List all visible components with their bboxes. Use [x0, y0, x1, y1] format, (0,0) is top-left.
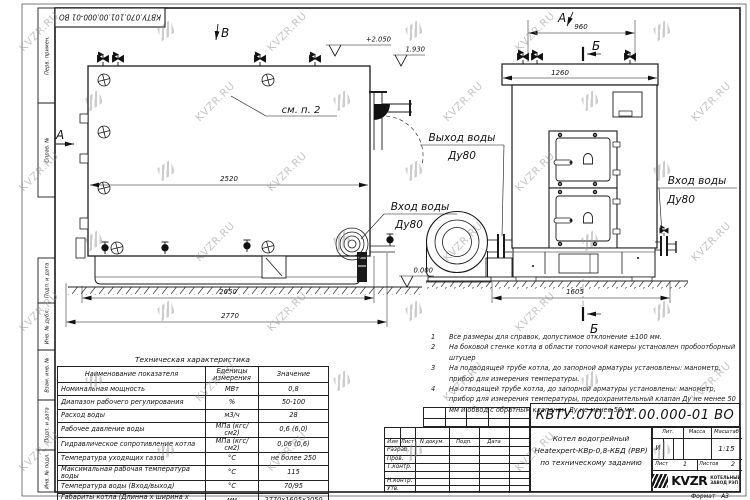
scale-value: 1:15: [711, 445, 742, 452]
lit-header: Лит.: [653, 430, 683, 435]
water-inlet-dn-front: Ду80: [666, 194, 695, 206]
drawing-title-cell: Котел водогрейный Heatexpert-КВр-0,8-КБД…: [530, 427, 652, 492]
stamp-sprav-n: Справ. №: [45, 137, 51, 162]
top-doc-number-box: КВТУ.070.101.00.000-01 ВО: [55, 8, 165, 27]
elevation-pipe: 1.930: [406, 46, 425, 54]
sheets-label: Листов: [699, 462, 723, 467]
note-item: 3 На подводящей трубе котла, до запорной…: [428, 363, 740, 384]
row-checked: Пров.: [387, 457, 404, 463]
param-unit: %: [206, 396, 259, 409]
col-doc: N докум.: [415, 440, 449, 445]
change-record-grid: [423, 407, 530, 427]
table-row: Температура воды (Вход/выход)°С70/95: [58, 480, 329, 493]
format-label: Формат: [691, 493, 715, 500]
table-row: Диапазон рабочего регулирования%50-100: [58, 396, 329, 409]
note-number: 2: [428, 342, 449, 363]
tech-header: Значение: [259, 367, 329, 383]
water-outlet-label: Выход воды: [429, 132, 496, 144]
tech-characteristics: Техническая характеристика Наименование …: [57, 354, 328, 500]
water-inlet-label-side: Вход воды: [391, 201, 450, 213]
company-logo-text: KVZR: [671, 473, 707, 488]
param-unit: °С: [206, 465, 259, 480]
water-inlet-label-front: Вход воды: [668, 175, 727, 187]
table-row: Температура уходящих газов°Сне более 250: [58, 452, 329, 465]
param-unit: мм: [206, 494, 259, 500]
company-name-line2: ЗАВОД РЭП: [710, 481, 741, 486]
sheet-value: 1: [679, 462, 691, 468]
col-izm: Изм: [385, 440, 400, 445]
kvzr-logo-icon: [652, 474, 668, 488]
signature-section: Изм Лист N докум. Подп. Дата Разраб. Про…: [384, 427, 530, 492]
view-label-b-top: В: [221, 26, 229, 40]
stamp-perv-primen: Перв. примен.: [45, 36, 51, 75]
drawing-title-line3: по техническому заданию: [531, 457, 651, 469]
doc-number-cell: КВТУ.070.101.00.000-01 ВО: [530, 403, 740, 427]
format-note: Формат А3: [384, 493, 741, 500]
title-block: КВТУ.070.101.00.000-01 ВО Изм Лист N док…: [384, 403, 741, 500]
note-text: На подводящей трубе котла, до запорной а…: [449, 363, 740, 384]
param-name: Рабочее давление воды: [58, 422, 206, 437]
param-value: 0,06 (0,6): [259, 437, 329, 452]
note-number: 3: [428, 363, 449, 384]
company-name: КОТЕЛЬНЫЙ ЗАВОД РЭП: [710, 476, 741, 486]
param-value: 115: [259, 465, 329, 480]
stamp-podp-data-1: Подп. и дата: [45, 263, 51, 298]
param-name: Температура уходящих газов: [58, 452, 206, 465]
dim-base-width: 1605: [566, 288, 584, 296]
tech-table: Наименование показателя Еденицы измерени…: [57, 366, 329, 500]
param-name: Номинальная мощность: [58, 383, 206, 396]
top-doc-number: КВТУ.070.101.00.000-01 ВО: [59, 13, 161, 22]
sheet-label: Лист: [655, 462, 675, 467]
param-name: Максимальная рабочая температура воды: [58, 465, 206, 480]
note-item: 2 На боковой стенке котла в области топо…: [428, 342, 740, 363]
elevation-top: +2.050: [366, 36, 391, 44]
note-number: 1: [428, 332, 449, 342]
row-tcontrol: Т.контр.: [387, 465, 412, 471]
view-label-a-side: А: [55, 128, 64, 142]
drawing-sheet: КВТУ.070.101.00.000-01 ВО Перв. примен. …: [0, 0, 750, 500]
param-unit: МПа (кгс/см2): [206, 437, 259, 452]
param-unit: °С: [206, 480, 259, 493]
boiler-front-view: [426, 46, 688, 306]
note-text: Все размеры для справок, допустимое откл…: [449, 332, 740, 342]
stamp-podp-data-2: Подп. и дата: [45, 407, 51, 442]
note-item: 1 Все размеры для справок, допустимое от…: [428, 332, 740, 342]
param-name: Диапазон рабочего регулирования: [58, 396, 206, 409]
callout-see-item: см. п. 2: [282, 105, 321, 116]
lit-value: И: [653, 445, 663, 452]
company-cell: KVZR КОТЕЛЬНЫЙ ЗАВОД РЭП: [652, 469, 741, 492]
stamp-vzam-inv: Взам. инв. №: [45, 357, 51, 392]
drawing-title-line2: Heatexpert-КВр-0,8-КБД (РВР): [531, 445, 651, 457]
table-row: Максимальная рабочая температура воды°С1…: [58, 465, 329, 480]
section-label-top: Б: [592, 39, 600, 53]
tech-header: Еденицы измерения: [206, 367, 259, 383]
param-unit: °С: [206, 452, 259, 465]
scale-header: Масштаб: [711, 430, 742, 435]
param-unit: МПа (кгс/см2): [206, 422, 259, 437]
stamp-inv-dubl: Инв. № дубл.: [45, 309, 51, 345]
doc-number: КВТУ.070.101.00.000-01 ВО: [536, 408, 735, 423]
table-row: Рабочее давление водыМПа (кгс/см2)0,6 (6…: [58, 422, 329, 437]
dim-drum-length: 2520: [220, 175, 238, 183]
mass-header: Масса: [683, 430, 711, 435]
row-ncontrol: Н.контр.: [387, 479, 412, 485]
param-value: не более 250: [259, 452, 329, 465]
water-outlet-dn: Ду80: [447, 150, 476, 162]
col-date: Дата: [479, 440, 509, 445]
param-unit: м3/ч: [206, 409, 259, 422]
note-text: На боковой стенке котла в области топочн…: [449, 342, 740, 363]
col-sign: Подп.: [449, 440, 479, 445]
table-row: Гидравлическое сопротивление котлаМПа (к…: [58, 437, 329, 452]
tech-header: Наименование показателя: [58, 367, 206, 383]
table-row: Номинальная мощностьМВт0,8: [58, 383, 329, 396]
param-name: Гидравлическое сопротивление котла: [58, 437, 206, 452]
param-unit: МВт: [206, 383, 259, 396]
table-row: Габариты котла (Длинна х ширина х высота…: [58, 494, 329, 500]
margin-stamps: Перв. примен. Справ. № Подп. и дата Инв.…: [38, 8, 55, 492]
sheets-value: 2: [727, 462, 739, 468]
tech-table-title: Техническая характеристика: [57, 354, 328, 366]
water-inlet-dn-side: Ду80: [394, 219, 423, 231]
tech-header-row: Наименование показателя Еденицы измерени…: [58, 367, 329, 383]
param-value: 50-100: [259, 396, 329, 409]
row-approved: Утв.: [387, 487, 399, 493]
param-value: 28: [259, 409, 329, 422]
dim-valve-span: 960: [574, 23, 588, 31]
dim-total-length: 2770: [221, 312, 239, 320]
view-label-a-front: А: [557, 11, 566, 25]
param-name: Температура воды (Вход/выход): [58, 480, 206, 493]
format-value: А3: [721, 493, 729, 500]
elevation-ground: 0.000: [414, 267, 433, 275]
table-row: Расход водым3/ч28: [58, 409, 329, 422]
row-developed: Разраб.: [387, 448, 409, 454]
param-value: 0,8: [259, 383, 329, 396]
dim-base-length: 2650: [219, 288, 237, 296]
stamp-inv-podl: Инв. № подл.: [45, 453, 51, 489]
param-value: 0,6 (6,0): [259, 422, 329, 437]
dim-top-width: 1260: [551, 69, 569, 77]
param-value: 2770х1605х2050: [259, 494, 329, 500]
boiler-side-view: [68, 52, 423, 294]
param-name: Габариты котла (Длинна х ширина х высота…: [58, 494, 206, 500]
param-name: Расход воды: [58, 409, 206, 422]
param-value: 70/95: [259, 480, 329, 493]
drawing-title-line1: Котел водогрейный: [531, 433, 651, 445]
col-list: Лист: [400, 440, 415, 445]
